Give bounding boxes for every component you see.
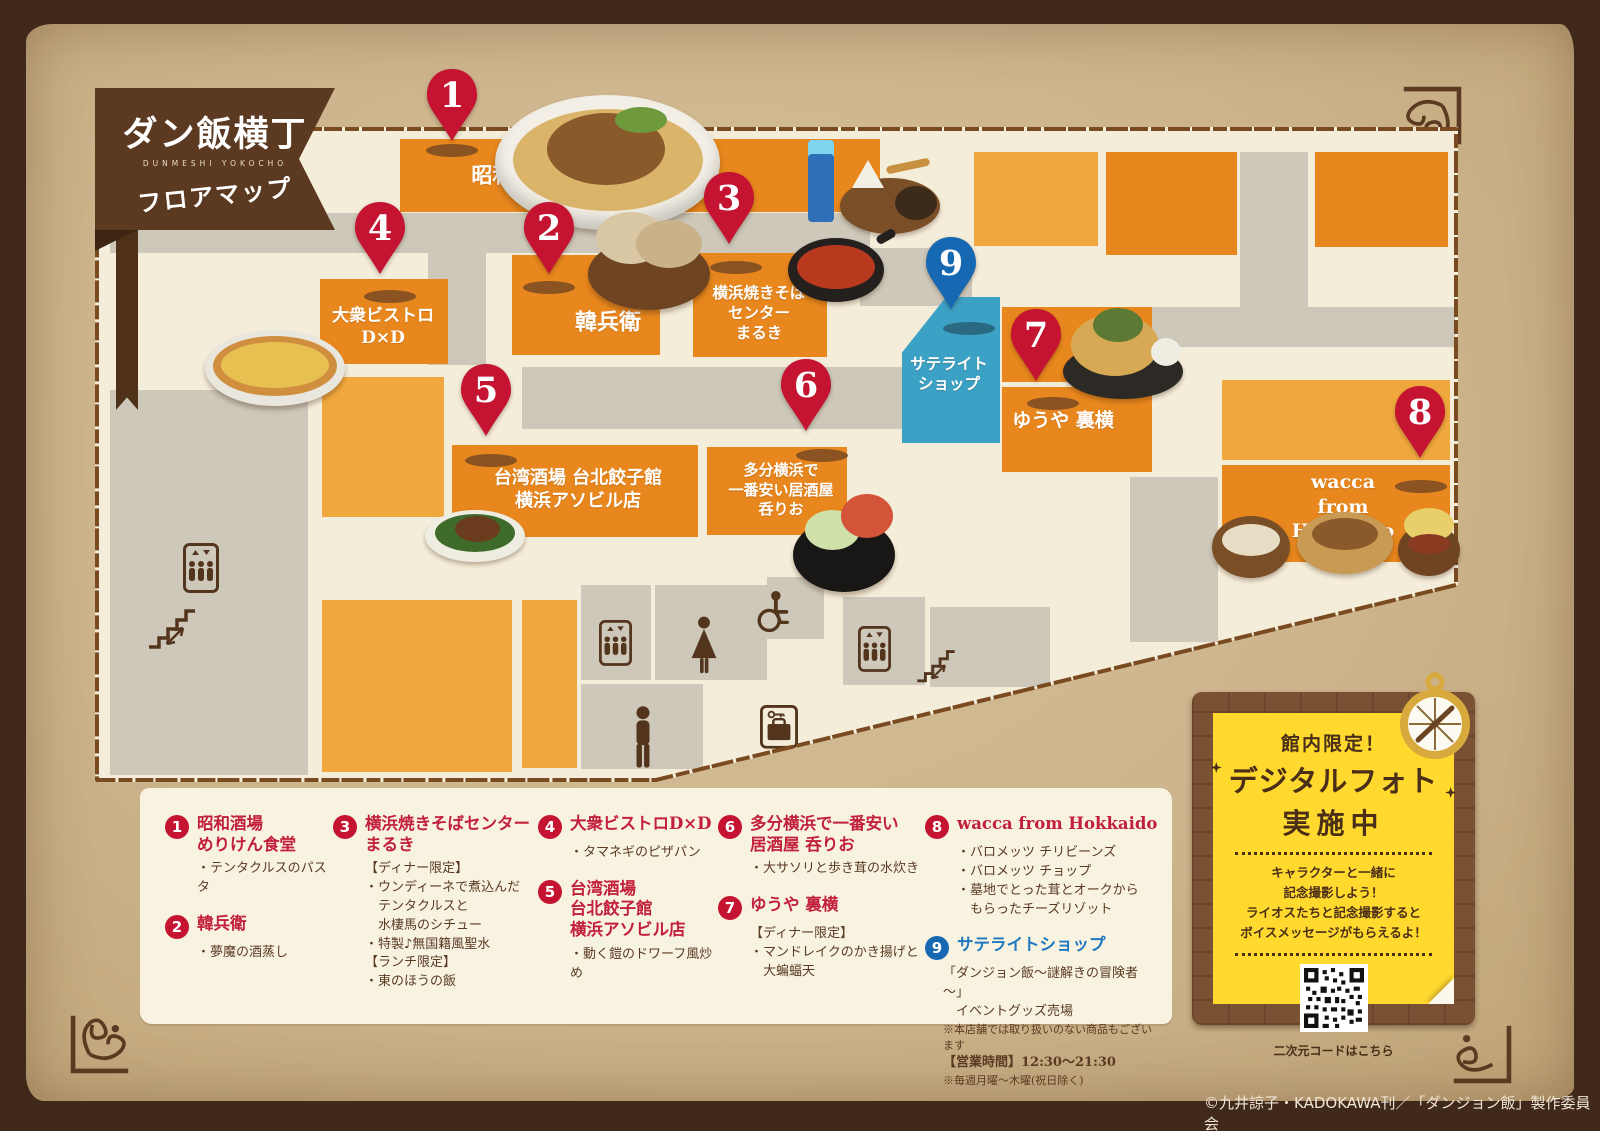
food-photo-hotpot <box>793 492 895 592</box>
elevator-icon <box>599 620 632 666</box>
folded-corner <box>1428 978 1454 1004</box>
legend-entry-8: 8 wacca from Hokkaido ・バロメッツ チリビーンズ ・バロメ… <box>925 814 1160 919</box>
qr-code-image <box>1300 964 1368 1032</box>
coin-locker-icon <box>760 705 798 749</box>
legend-panel: 1 昭和酒場 めりけん食堂 ・テンタクルスのパスタ 2 韓兵衛 ・夢魔の酒蒸し … <box>140 788 1172 1024</box>
pin-number: 1 <box>424 75 480 116</box>
legend-number-badge: 3 <box>333 815 357 839</box>
corridor-block <box>1240 152 1308 307</box>
compass-icon <box>1398 668 1472 768</box>
pin-number: 2 <box>521 208 577 249</box>
legend-store-name: ゆうや 裏横 <box>750 895 838 916</box>
womens-restroom-icon <box>690 615 718 677</box>
legend-store-name: 台湾酒場 台北餃子館 横浜アソビル店 <box>570 879 686 941</box>
sparkle-icon <box>1211 762 1222 773</box>
legend-store-name: 横浜焼きそばセンター まるき <box>365 814 530 855</box>
legend-entry-2: 2 韓兵衛 ・夢魔の酒蒸し <box>165 914 330 963</box>
stairs-icon <box>914 645 958 689</box>
elevator-icon <box>858 626 891 672</box>
legend-menu-item: ・大サソリと歩き茸の水炊き <box>750 860 933 879</box>
pin-shadow <box>364 290 416 303</box>
promo-title-text: デジタルフォト <box>1229 764 1438 798</box>
legend-note: ※毎週月曜～木曜(祝日除く) <box>943 1073 1160 1089</box>
legend-menu-item: ・動く鎧のドワーフ風炒め <box>570 946 713 984</box>
legend-note: ※本店舗では取り扱いのない商品もございます <box>943 1022 1160 1054</box>
legend-entry-7: 7 ゆうや 裏横 【ディナー限定】 ・マンドレイクのかき揚げと 大蝙蝠天 <box>718 895 933 982</box>
food-photo-stirfry <box>425 500 525 562</box>
pin-number: 7 <box>1008 315 1064 356</box>
store-block <box>522 600 577 768</box>
food-photo-tempura <box>1063 308 1183 403</box>
corridor-block <box>522 367 912 429</box>
legend-menu-item: 【ディナー限定】 <box>365 860 533 879</box>
legend-entry-6: 6 多分横浜で一番安い 居酒屋 呑りお ・大サソリと歩き茸の水炊き <box>718 814 933 879</box>
pin-number: 9 <box>923 243 979 284</box>
floor-map-poster: ダン飯横丁 DUNMESHI YOKOCHO フロアマップ <box>0 0 1600 1131</box>
legend-number-badge: 9 <box>925 936 949 960</box>
store-label-hanbee: 韓兵衛 <box>575 309 641 338</box>
page-title: ダン飯横丁 <box>95 106 335 157</box>
map-pin-4: 4 <box>352 200 408 276</box>
qr-caption: 二次元コードはこちら <box>1213 1042 1454 1059</box>
pin-shadow <box>465 454 517 467</box>
store-block <box>974 152 1098 246</box>
legend-number-badge: 2 <box>165 915 189 939</box>
banner-fold <box>95 229 139 251</box>
legend-menu-item: ・特製♪無国籍風聖水 <box>365 936 533 955</box>
pin-shadow <box>426 144 478 157</box>
food-photo-wacca-dishes <box>1212 500 1464 580</box>
legend-column-5: 8 wacca from Hokkaido ・バロメッツ チリビーンズ ・バロメ… <box>925 814 1160 1105</box>
legend-entry-1: 1 昭和酒場 めりけん食堂 ・テンタクルスのパスタ <box>165 814 330 898</box>
store-label-satellite-shop: サテライト ショップ <box>910 354 988 394</box>
legend-menu-item: ・テンタクルスのパスタ <box>197 860 330 898</box>
legend-store-name: 多分横浜で一番安い 居酒屋 呑りお <box>750 814 899 855</box>
pin-number: 3 <box>701 178 757 219</box>
sparkle-icon <box>1445 787 1456 798</box>
legend-number-badge: 7 <box>718 896 742 920</box>
pin-shadow <box>523 281 575 294</box>
legend-menu-item: ・東のほうの飯 <box>365 973 533 992</box>
pin-shadow <box>943 322 995 335</box>
copyright-notice: ©九井諒子・KADOKAWA刊／「ダンジョン飯」製作委員会 <box>1204 1092 1600 1131</box>
dotted-divider <box>1235 852 1433 855</box>
legend-column-2: 3 横浜焼きそばセンター まるき 【ディナー限定】 ・ウンディーネで煮込んだ テ… <box>333 814 533 1008</box>
map-pin-6: 6 <box>778 357 834 433</box>
legend-menu-item: ・タマネギのピザパン <box>570 844 713 863</box>
legend-menu-item: 【ディナー限定】 <box>750 925 933 944</box>
legend-column-4: 6 多分横浜で一番安い 居酒屋 呑りお ・大サソリと歩き茸の水炊き 7 ゆうや … <box>718 814 933 998</box>
legend-menu-item: ・バロメッツ チョップ <box>957 863 1160 882</box>
store-label-yuya: ゆうや 裏横 <box>1012 409 1114 434</box>
legend-entry-3: 3 横浜焼きそばセンター まるき 【ディナー限定】 ・ウンディーネで煮込んだ テ… <box>333 814 533 992</box>
legend-menu-item: ・マンドレイクのかき揚げと 大蝙蝠天 <box>750 944 933 982</box>
legend-entry-4: 4 大衆ビストロD×D ・タマネギのピザパン <box>538 814 713 863</box>
legend-column-1: 1 昭和酒場 めりけん食堂 ・テンタクルスのパスタ 2 韓兵衛 ・夢魔の酒蒸し <box>165 814 330 979</box>
store-block <box>1106 152 1237 255</box>
store-block <box>322 600 512 772</box>
qr-code <box>1213 964 1454 1036</box>
food-photo-clams <box>588 210 710 310</box>
pin-number: 6 <box>778 365 834 406</box>
map-pin-1: 1 <box>424 67 480 143</box>
elevator-icon <box>183 543 219 597</box>
pin-number: 8 <box>1392 392 1448 433</box>
legend-number-badge: 1 <box>165 815 189 839</box>
map-pin-5: 5 <box>458 362 514 438</box>
food-photo-stew-pan <box>788 222 896 306</box>
food-photo-pizza <box>205 318 345 406</box>
legend-number-badge: 6 <box>718 815 742 839</box>
wheelchair-accessible-icon <box>753 590 793 628</box>
legend-entry-9: 9 サテライトショップ 「ダンジョン飯～謎解きの冒険者～」 イベントグッズ売場 … <box>925 935 1160 1088</box>
map-pin-8: 8 <box>1392 384 1448 460</box>
legend-menu-item: ・バロメッツ チリビーンズ <box>957 844 1160 863</box>
map-pin-9: 9 <box>923 235 979 311</box>
legend-number-badge: 4 <box>538 815 562 839</box>
pin-number: 5 <box>458 370 514 411</box>
floor-map-caption: フロアマップ <box>94 164 336 224</box>
legend-menu-item: 【ランチ限定】 <box>365 954 533 973</box>
legend-store-name: wacca from Hokkaido <box>957 814 1157 835</box>
pin-shadow <box>710 261 762 274</box>
legend-hours: 【営業時間】12:30～21:30 <box>943 1054 1160 1073</box>
promo-status: 実施中 <box>1213 802 1454 842</box>
map-pin-3: 3 <box>701 170 757 246</box>
legend-column-3: 4 大衆ビストロD×D ・タマネギのピザパン 5 台湾酒場 台北餃子館 横浜アソ… <box>538 814 713 999</box>
legend-store-name: 韓兵衛 <box>197 914 247 935</box>
legend-number-badge: 5 <box>538 880 562 904</box>
legend-store-name: 昭和酒場 めりけん食堂 <box>197 814 296 855</box>
promo-description: キャラクターと一緒に 記念撮影しよう！ ライオスたちと記念撮影すると ボイスメッ… <box>1213 863 1454 943</box>
map-pin-2: 2 <box>521 200 577 276</box>
legend-number-badge: 8 <box>925 815 949 839</box>
corridor-block <box>1130 477 1218 642</box>
store-block <box>1315 152 1448 247</box>
legend-store-name: サテライトショップ <box>957 935 1106 956</box>
title-banner: ダン飯横丁 DUNMESHI YOKOCHO フロアマップ <box>95 88 335 230</box>
mens-restroom-icon <box>630 705 656 761</box>
legend-menu-item: ・墓地でとった茸とオークから もらったチーズリゾット <box>957 882 1160 920</box>
banner-ribbon-tail <box>116 230 138 410</box>
dotted-divider <box>1235 953 1433 956</box>
map-pin-7: 7 <box>1008 307 1064 383</box>
legend-store-name: 大衆ビストロD×D <box>570 814 711 835</box>
stairs-icon <box>145 603 199 653</box>
legend-menu-item: ・夢魔の酒蒸し <box>197 944 330 963</box>
legend-menu-item: 「ダンジョン飯～謎解きの冒険者～」 イベントグッズ売場 <box>943 965 1160 1022</box>
store-label-bistro-dxd: 大衆ビストロ D×D <box>332 305 434 349</box>
legend-menu-item: ・ウンディーネで煮込んだ テンタクルスと 水棲馬のシチュー <box>365 879 533 936</box>
legend-entry-5: 5 台湾酒場 台北餃子館 横浜アソビル店 ・動く鎧のドワーフ風炒め <box>538 879 713 984</box>
pin-shadow <box>1395 480 1447 493</box>
pin-number: 4 <box>352 208 408 249</box>
